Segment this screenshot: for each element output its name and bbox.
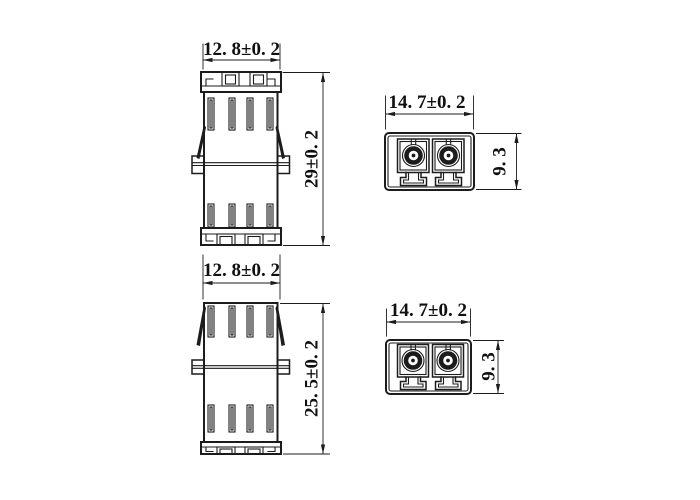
- side-latches: [197, 124, 286, 159]
- dim-label-side-top-height: 29±0. 2: [302, 130, 323, 188]
- lc-port-left: [398, 139, 430, 186]
- dim-side-top-width: 12. 8±0. 2: [203, 39, 280, 69]
- dim-label-front-bottom-width: 14. 7±0. 2: [390, 300, 467, 321]
- dim-label-front-top-width: 14. 7±0. 2: [389, 92, 466, 113]
- dim-front-top-width: 14. 7±0. 2: [386, 92, 474, 129]
- dim-side-bottom-height: 25. 5±0. 2: [281, 304, 330, 455]
- vent-slots-lower-b: [208, 405, 273, 432]
- middle-flange-b: [192, 360, 290, 374]
- lc-port-right-b: [433, 345, 464, 390]
- middle-flange: [192, 156, 290, 174]
- technical-drawing-canvas: 12. 8±0. 2 29±0. 2: [0, 0, 700, 500]
- vent-slots-upper: [208, 98, 273, 130]
- side-view-bottom: 12. 8±0. 2 25. 5±0. 2: [192, 255, 330, 454]
- top-cap: [201, 72, 281, 92]
- key-tab-right-b: [436, 377, 462, 390]
- lc-port-left-b: [398, 345, 429, 390]
- dim-label-side-bottom-width: 12. 8±0. 2: [203, 260, 280, 281]
- dim-label-front-top-height: 9. 3: [490, 147, 511, 176]
- vent-slots-lower: [208, 204, 273, 227]
- dim-label-side-bottom-height: 25. 5±0. 2: [302, 340, 323, 417]
- bottom-cap-b: [201, 442, 281, 454]
- side-view-top: 12. 8±0. 2 29±0. 2: [192, 39, 330, 246]
- dim-front-bottom-height: 9. 3: [474, 341, 504, 394]
- dim-label-side-top-width: 12. 8±0. 2: [203, 39, 280, 60]
- lc-adapter-drawing: 12. 8±0. 2 29±0. 2: [0, 0, 700, 500]
- bottom-cap: [201, 228, 281, 245]
- lc-port-right: [433, 139, 465, 186]
- front-view-top: 14. 7±0. 2 9. 3: [385, 92, 521, 190]
- dim-front-top-height: 9. 3: [477, 134, 522, 190]
- dim-front-bottom-width: 14. 7±0. 2: [387, 300, 471, 336]
- front-view-bottom: 14. 7±0. 2 9. 3: [386, 300, 504, 394]
- key-tab-left-b: [401, 377, 427, 390]
- dim-side-bottom-width: 12. 8±0. 2: [203, 255, 280, 299]
- vent-slots-upper-b: [208, 306, 273, 337]
- dim-label-front-bottom-height: 9. 3: [479, 352, 500, 381]
